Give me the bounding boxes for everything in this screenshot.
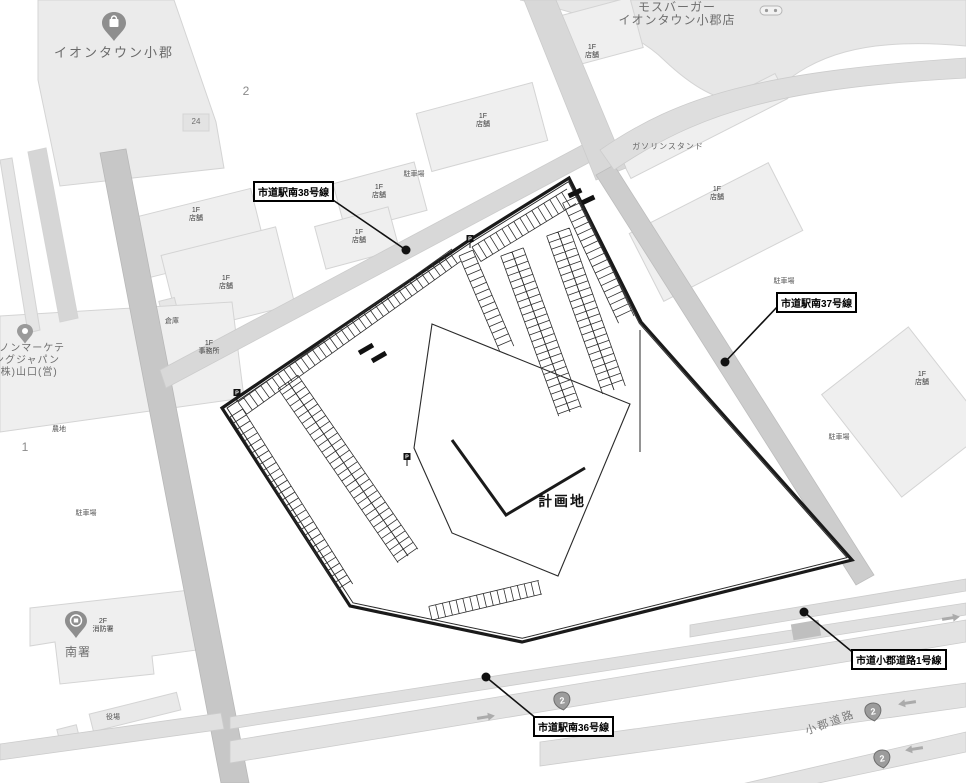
poi-minami-station: 南署 <box>65 643 91 660</box>
road-label-box-ogori1: 市道小郡道路1号線 <box>851 649 947 670</box>
label-office: 1F事務所 <box>199 340 220 356</box>
poi-mosburger-line2: イオンタウン小郡店 <box>618 11 735 28</box>
label-shop-1f: 1F店舗 <box>585 44 599 60</box>
label-shop-1f: 1F店舗 <box>189 207 203 223</box>
label-town-hall: 役場 <box>106 712 120 722</box>
block-number-1: 1 <box>22 440 29 454</box>
poi-canon: ヤノンマーケテ ングジャパン (株)山口(営) <box>0 343 65 379</box>
road-label-box-ekinan36: 市道駅南36号線 <box>533 716 614 737</box>
label-parking: 駐車場 <box>404 169 425 179</box>
dot-ekinan38 <box>402 246 411 255</box>
svg-text:P: P <box>468 237 472 243</box>
road-label-box-ekinan37: 市道駅南37号線 <box>776 292 857 313</box>
site-label: 計画地 <box>538 491 586 511</box>
label-parking: 駐車場 <box>774 276 795 286</box>
label-shop-1f: 1F店舗 <box>372 184 386 200</box>
block-number-24: 24 <box>192 117 201 126</box>
block-number-2: 2 <box>243 84 250 98</box>
label-shop-1f: 1F店舗 <box>219 275 233 291</box>
label-parking: 駐車場 <box>76 508 97 518</box>
poi-iontown: イオンタウン小郡 <box>54 42 174 61</box>
label-fire-station: 2F消防署 <box>93 618 114 634</box>
label-parking: 駐車場 <box>829 432 850 442</box>
road-label-box-ekinan38: 市道駅南38号線 <box>253 181 334 202</box>
label-shop-1f: 1F店舗 <box>352 229 366 245</box>
label-shop-1f: 1F店舗 <box>476 113 490 129</box>
svg-text:P: P <box>405 455 409 461</box>
label-shop-1f: 1F店舗 <box>915 371 929 387</box>
block-minamisho <box>30 590 197 684</box>
leader-ekinan37 <box>725 306 778 362</box>
map-canvas: PPP 2 2 2 <box>0 0 966 783</box>
label-shop-1f: 1F店舗 <box>710 186 724 202</box>
block-iontown <box>38 0 224 186</box>
dot-ogori1 <box>800 608 809 617</box>
svg-text:P: P <box>235 391 239 397</box>
label-farmland: 農地 <box>52 424 66 434</box>
dot-ekinan36 <box>482 673 491 682</box>
poi-gas-station: ガソリンスタンド <box>632 141 704 152</box>
label-warehouse: 倉庫 <box>165 316 179 326</box>
bldg-g <box>822 327 966 497</box>
dot-ekinan37 <box>721 358 730 367</box>
signal-icon <box>760 6 782 15</box>
